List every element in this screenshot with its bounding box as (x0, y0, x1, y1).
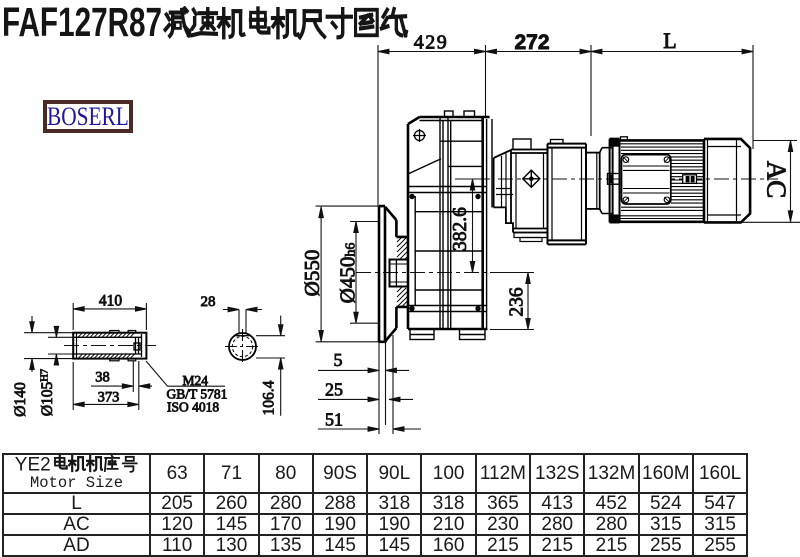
svg-text:28: 28 (201, 294, 216, 310)
svg-text:272: 272 (514, 31, 549, 54)
svg-text:236: 236 (507, 287, 528, 317)
svg-text:Ø450h6: Ø450h6 (336, 243, 360, 304)
svg-text:Ø105H7: Ø105H7 (39, 369, 56, 416)
svg-text:AC: AC (762, 161, 792, 199)
svg-text:373: 373 (98, 390, 120, 406)
svg-text:L: L (663, 28, 676, 53)
svg-text:25: 25 (325, 380, 343, 400)
svg-text:51: 51 (325, 410, 343, 430)
svg-text:410: 410 (99, 293, 123, 310)
svg-text:Ø550: Ø550 (300, 250, 324, 297)
svg-text:106.4: 106.4 (261, 380, 278, 415)
svg-text:38: 38 (95, 370, 110, 386)
svg-text:429: 429 (414, 32, 449, 54)
svg-text:ISO 4018: ISO 4018 (167, 399, 219, 414)
svg-text:5: 5 (334, 350, 343, 370)
svg-text:Ø140: Ø140 (12, 382, 29, 417)
svg-text:382.6: 382.6 (450, 207, 471, 251)
